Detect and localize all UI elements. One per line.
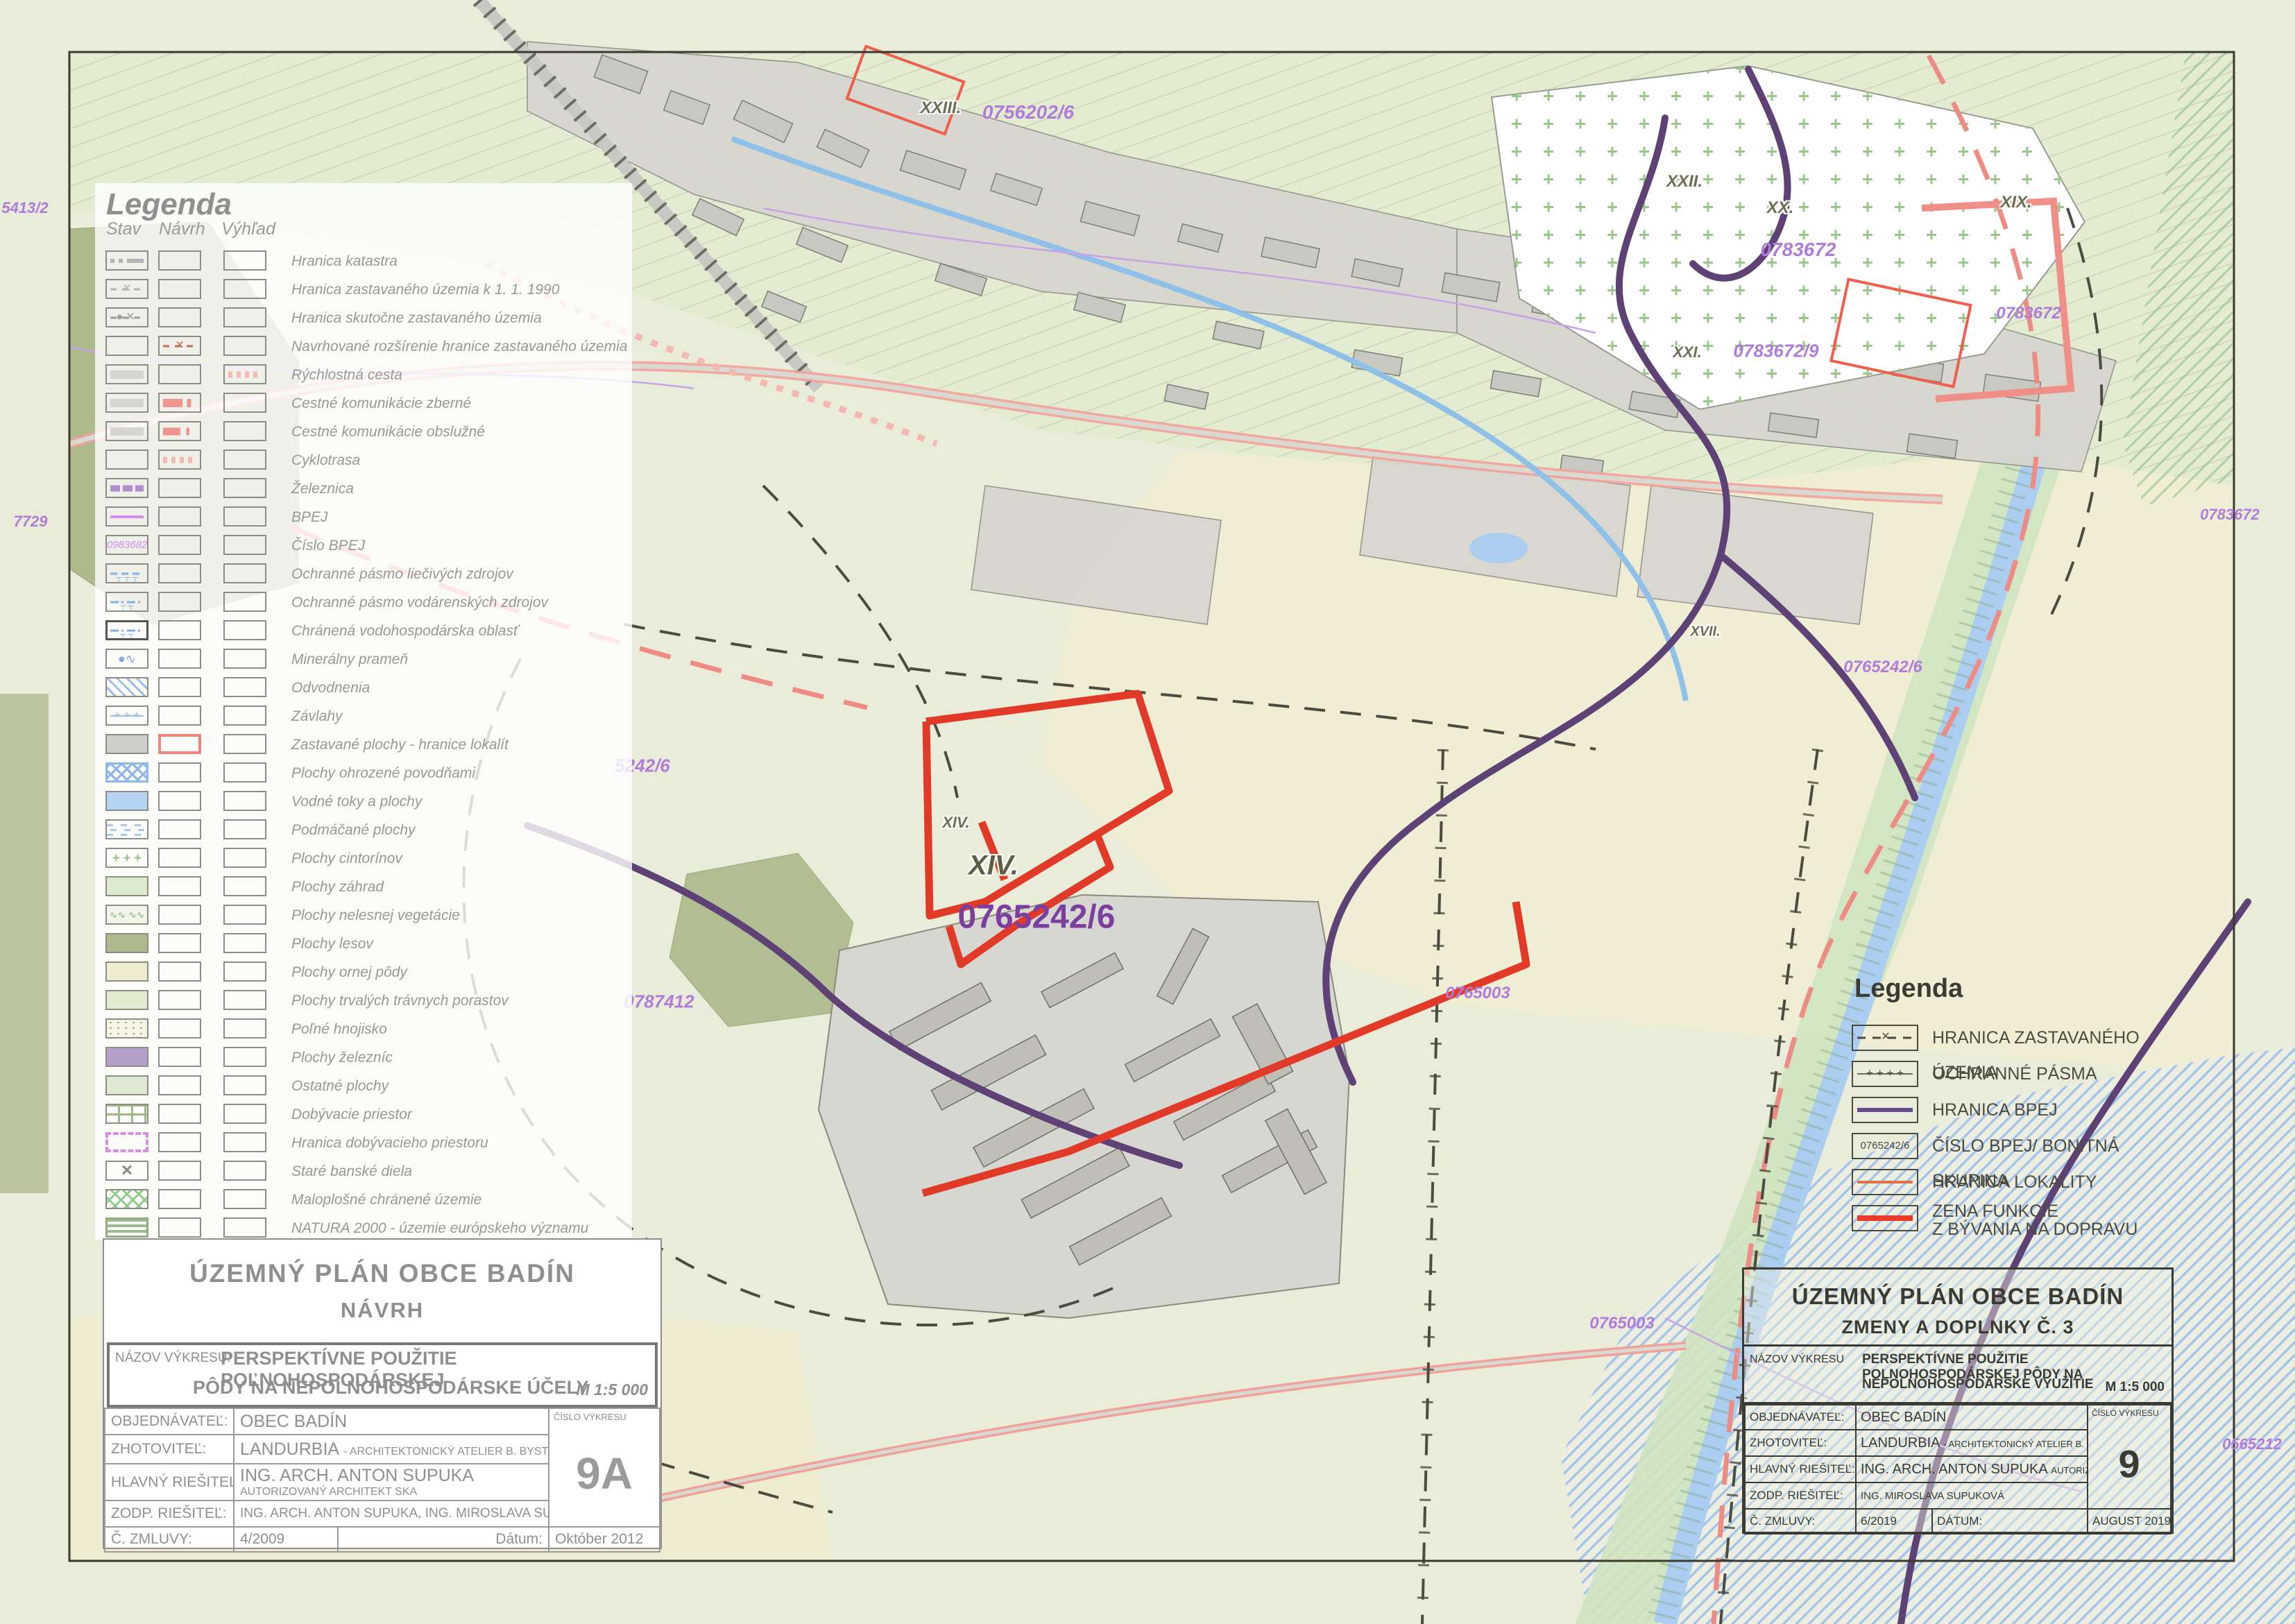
legend-swatch-c1 [105,677,148,697]
legend-swatch-c1 [105,933,148,953]
legend-right-item: ZENA FUNKCIE Z BÝVANIA NA DOPRAVU [1852,1201,2199,1237]
value-hlavny-riesitel: ING. ARCH. ANTON SUPUKA AUTORIZOVANÝ ARC… [234,1464,549,1501]
empty-swatch-icon [160,1048,200,1066]
legend-swatch-c3 [223,762,266,783]
blue-dashes-swatch-icon [107,821,147,838]
legend-row: Závlahy [95,702,632,730]
legend-row: Hranica skutočne zastavaného územia [95,304,632,332]
map-label: 0565212 [2222,1435,2282,1453]
legend-swatch-c1 [105,592,148,612]
legend-row: BPEJ [95,503,632,531]
legend-swatch-c3 [223,791,266,811]
legend-row-label: Plochy ohrozené povodňami [291,759,475,787]
legend-row: Hranica zastavaného územia k 1. 1. 1990 [95,275,632,304]
legend-swatch-c3 [223,563,266,583]
legend-row-label: Plochy železníc [291,1043,393,1072]
blue-ticks-swatch-icon [107,565,147,582]
legend-col-stav: Stav [106,219,141,239]
map-label: XIV. [942,814,970,832]
olive-speckle-swatch-icon [107,1020,147,1037]
legend-row-label: Ochranné pásmo liečivých zdrojov [291,560,513,588]
map-label: 0756202/6 [982,101,1074,123]
legend-swatch-c1 [105,393,148,413]
legend-row: 0983682/9Číslo BPEJ [95,531,632,560]
legend-swatch-c3 [223,279,266,299]
legend-swatch-c1 [105,336,148,356]
legend-row: Cestné komunikácie zberné [95,389,632,418]
legend-swatch-c1 [105,649,148,669]
empty-swatch-icon [107,337,147,354]
legend-row: Poľné hnojisko [95,1015,632,1043]
value-zodp-riesitel: ING. ARCH. ANTON SUPUKA, ING. MIROSLAVA … [234,1501,549,1527]
empty-swatch-icon [225,1162,265,1179]
titleblock-right-title: ÚZEMNÝ PLÁN OBCE BADÍN [1744,1283,2172,1310]
legend-swatch-c3 [223,250,266,271]
legend-right-item: HRANICA BPEJ [1852,1093,2199,1129]
legend-right-swatch [1852,1169,1918,1195]
olive-fill-swatch-icon [107,934,147,952]
map-label: XXII. [1666,172,1703,191]
legend-swatch-c1 [105,706,148,726]
label-hlavny-riesitel-r: HLAVNÝ RIEŠITEĽ: [1745,1456,1856,1482]
titleblock-right: ÚZEMNÝ PLÁN OBCE BADÍN ZMENY A DOPLNKY Č… [1742,1267,2174,1534]
legend-swatch-c1: 0983682/9 [105,535,148,555]
empty-swatch-icon [160,764,200,781]
legend-left-title: Legenda [106,187,232,222]
legend-row-label: Podmáčané plochy [291,816,416,844]
legend-swatch-c1 [105,905,148,925]
label-zmluva: Č. ZMLUVY: [105,1527,234,1552]
legend-swatch-c1 [105,1161,148,1181]
legend-swatch-c3 [223,393,266,413]
legend-row: Navrhované rozšírenie hranice zastavanéh… [95,332,632,361]
empty-swatch-icon [160,1077,200,1094]
legend-swatch-c3 [223,848,266,868]
legend-row-label: Vodné toky a plochy [291,787,422,816]
empty-swatch-icon [160,1162,200,1179]
map-label: XXIII. [921,99,962,118]
label-objednavatel-r: OBJEDNÁVATEĽ: [1745,1405,1856,1430]
legend-row: Staré banské diela [95,1157,632,1186]
legend-row-label: Železnica [291,475,354,503]
legend-row: Plochy záhrad [95,873,632,901]
drawing-name-line2: PÔDY NA NEPOĽNOHOSPODÁRSKE ÚČELY [193,1377,589,1399]
legend-row-label: Dobývacie priestor [291,1100,412,1129]
empty-swatch-icon [160,1219,200,1236]
empty-swatch-icon [225,280,265,298]
legend-row-label: Ochranné pásmo vodárenských zdrojov [291,588,548,617]
legend-swatch-c3 [223,677,266,697]
legend-swatch-c2 [158,961,201,982]
legend-swatch-c3 [223,535,266,555]
legend-row: Plochy lesov [95,930,632,958]
blue-spring-swatch-icon [107,650,147,667]
legend-swatch-c3 [223,819,266,839]
empty-swatch-icon [160,280,200,298]
legend-row-label: Číslo BPEJ [291,531,365,560]
empty-swatch-icon [225,622,265,639]
legend-swatch-c2 [158,535,201,555]
map-label: 5413/2 [1,199,48,217]
empty-swatch-icon [225,394,265,411]
legend-swatch-c2 [158,563,201,583]
legend-swatch-c3 [223,706,266,726]
legend-swatch-c2 [158,592,201,612]
empty-swatch-icon [225,508,265,525]
empty-swatch-icon [225,991,265,1009]
empty-swatch-icon [160,1190,200,1208]
legend-swatch-c1 [105,1104,148,1124]
drawing-name-box-right: NÁZOV VÝKRESU PERSPEKTÍVNE POUŽITIE POLN… [1744,1344,2172,1404]
gray-dot-x-swatch-icon [107,309,147,326]
legend-swatch-c1 [105,734,148,754]
legend-swatch-c2 [158,620,201,640]
map-label: 0783672 [1760,239,1836,261]
legend-right-title: Legenda [1854,974,2199,1004]
legend-swatch-c1 [105,961,148,982]
empty-swatch-icon [160,792,200,810]
empty-swatch-icon [225,1048,265,1066]
legend-swatch-c3 [223,1132,266,1152]
plan-sheet: 5413/27729XXIII.0756202/6XXII.XX.XIX.078… [0,0,2295,1624]
green-plus-swatch-icon [107,849,147,866]
legend-right-swatch [1852,1097,1918,1123]
legend-row-label: Cestné komunikácie obslužné [291,418,485,446]
legend-swatch-c3 [223,1018,266,1038]
empty-swatch-icon [225,678,265,696]
value-zmluva: 4/2009 [234,1527,338,1552]
empty-swatch-icon [160,622,200,639]
label-zhotovitel: ZHOTOVITEĽ: [105,1435,234,1464]
legend-swatch-c3 [223,1047,266,1067]
sheet-number-cell-r: ČÍSLO VÝKRESU 9 [2088,1405,2171,1509]
green-scribble-swatch-icon [107,906,147,923]
value-zhotovitel-r: LANDURBIA - ARCHITEKTONICKÝ ATELIER B. B… [1856,1430,2088,1456]
empty-swatch-icon [225,1077,265,1094]
legend-swatch-c3 [223,450,266,470]
value-hlavny-riesitel-r: ING. ARCH. ANTON SUPUKA AUTORIZOVANÝ ARC… [1856,1456,2088,1482]
legend-swatch-c1 [105,620,148,640]
blue-plusgrid-swatch-icon [107,707,147,724]
label-hlavny-riesitel: HLAVNÝ RIEŠITEĽ: [105,1464,234,1501]
empty-swatch-icon [225,735,265,753]
legend-swatch-c3 [223,421,266,441]
blue-hatch-swatch-icon [107,678,147,696]
gray-band-swatch-icon [107,422,147,440]
legend-row: Cyklotrasa [95,446,632,475]
legend-row: Vodné toky a plochy [95,787,632,816]
legend-swatch-c1 [105,563,148,583]
purple-rail-swatch-icon [107,479,147,497]
legend-row: Chránená vodohospodárska oblasť [95,617,632,645]
sheet-number-cell: ČÍSLO VÝKRESU 9A [549,1408,660,1527]
legend-row-label: Plochy cintorínov [291,844,402,873]
legend-swatch-c1 [105,990,148,1010]
sheet-number: 9A [549,1448,659,1499]
legend-swatch-c2 [158,279,201,299]
legend-swatch-c2 [158,848,201,868]
label-datum-r: DÁTUM: [1932,1509,2088,1534]
legend-swatch-c1 [105,506,148,527]
empty-swatch-icon [225,764,265,781]
drawing-name-line2-right: NEPOLNOHOSPODÁRSKE VYUŽITIE [1862,1377,2094,1392]
empty-swatch-icon [160,479,200,497]
value-datum-r: AUGUST 2019 [2088,1509,2171,1534]
legend-row-label: Plochy trvalých trávnych porastov [291,986,509,1015]
empty-swatch-icon [160,650,200,667]
drawing-name-label-right: NÁZOV VÝKRESU [1750,1353,1844,1366]
legend-row: Ochranné pásmo vodárenských zdrojov [95,588,632,617]
legend-swatch-c2 [158,791,201,811]
legend-right-item-label: ZENA FUNKCIE Z BÝVANIA NA DOPRAVU [1932,1201,2138,1238]
label-datum: Dátum: [338,1527,549,1552]
legend-row: Dobývacie priestor [95,1100,632,1129]
legend-swatch-c2 [158,1018,201,1038]
empty-swatch-icon [225,1190,265,1208]
legend-row: Plochy cintorínov [95,844,632,873]
label-zmluva-r: Č. ZMLUVY: [1745,1509,1856,1534]
legend-swatch-c3 [223,1217,266,1238]
green-bars-swatch-icon [108,1220,146,1236]
r-num-icon: 0765242/6 [1853,1134,1917,1158]
blue-fill-swatch-icon [107,792,147,810]
empty-swatch-icon [108,1135,146,1149]
empty-swatch-icon [225,479,265,497]
empty-swatch-icon [225,252,265,269]
sheet-number-r: 9 [2088,1441,2170,1486]
cream-fill-swatch-icon [107,963,147,980]
legend-swatch-c2 [158,1104,201,1124]
label-zhotovitel-r: ZHOTOVITEĽ: [1745,1430,1856,1456]
sheet-number-label: ČÍSLO VÝKRESU [554,1412,626,1422]
legend-row-label: Maloplošné chránené územie [291,1186,481,1214]
legend-swatch-c1 [105,1189,148,1209]
legend-row-label: Hranica zastavaného územia k 1. 1. 1990 [291,275,559,304]
map-label: XVII. [1690,624,1720,640]
legend-swatch-c3 [223,620,266,640]
legend-swatch-c3 [223,876,266,896]
legend-swatch-c2 [158,393,201,413]
legend-row-label: Hranica dobývacieho priestoru [291,1129,488,1157]
empty-swatch-icon [160,707,200,724]
legend-right-item-label: HRANICA LOKALITY [1932,1165,2097,1199]
legend-row: Plochy nelesnej vegetácie [95,901,632,930]
legend-swatch-c2 [158,762,201,783]
map-label: 0765003 [1589,1314,1654,1333]
legend-right-item-label: OCHRANNÉ PÁSMA [1932,1057,2097,1091]
r-red-icon [1853,1206,1917,1230]
empty-swatch-icon [225,906,265,923]
green-crosshatch-swatch-icon [107,1190,147,1208]
map-label: 0783672/9 [1734,341,1819,362]
map-label: 0765003 [1445,984,1510,1003]
lightgreen-fill-swatch-icon [107,878,147,895]
empty-swatch-icon [161,737,198,751]
empty-swatch-icon [225,536,265,554]
legend-swatch-c3 [223,1189,266,1209]
legend-swatch-c3 [223,734,266,754]
map-label: 0765242/6 [1843,658,1922,677]
empty-swatch-icon [160,593,200,610]
value-objednavatel: OBEC BADÍN [234,1408,549,1435]
legend-right-swatch [1852,1205,1918,1231]
map-label: 0783672 [2200,506,2260,524]
legend-row-label: Plochy ornej pôdy [291,958,407,986]
legend-row-label: Poľné hnojisko [291,1015,387,1043]
legend-swatch-c2 [158,649,201,669]
empty-swatch-icon [160,678,200,696]
r-purple-icon [1853,1098,1917,1122]
legend-swatch-c2 [158,905,201,925]
drawing-scale: M 1:5 000 [576,1381,648,1399]
legend-swatch-c2 [158,734,201,754]
legend-row: Zastavané plochy - hranice lokalít [95,730,632,759]
legend-swatch-c2 [158,1047,201,1067]
legend-swatch-c3 [223,336,266,356]
legend-row: Plochy trvalých trávnych porastov [95,986,632,1015]
salmon-blocks-swatch-icon [160,394,200,411]
legend-right-swatch: 0765242/6 [1852,1133,1918,1159]
empty-swatch-icon [160,963,200,980]
empty-swatch-icon [107,451,147,468]
legend-row-label: BPEJ [291,503,328,531]
r-plus-icon [1853,1062,1917,1086]
legend-swatch-c2 [158,1132,201,1152]
legend-row: Podmáčané plochy [95,816,632,844]
legend-swatch-c2 [158,478,201,498]
empty-swatch-icon [225,821,265,838]
legend-swatch-c3 [223,933,266,953]
legend-swatch-c2 [158,307,201,327]
empty-swatch-icon [160,821,200,838]
legend-row: Cestné komunikácie obslužné [95,418,632,446]
legend-row-label: Zastavané plochy - hranice lokalít [291,730,509,759]
legend-swatch-c1 [105,421,148,441]
legend-row-label: Chránená vodohospodárska oblasť [291,617,518,645]
empty-swatch-icon [160,508,200,525]
legend-swatch-c1 [105,1132,148,1152]
legend-swatch-c2 [158,1217,201,1238]
pink-dotted-swatch-icon [225,366,265,383]
legend-row: Maloplošné chránené územie [95,1186,632,1214]
legend-swatch-c1 [105,250,148,271]
legend-right-item: 0765242/6ČÍSLO BPEJ/ BONITNÁ SKUPINA [1852,1129,2199,1165]
legend-swatch-c1 [105,279,148,299]
legend-swatch-c3 [223,961,266,982]
legend-swatch-c1 [105,1018,148,1038]
map-label: 0787412 [624,991,694,1013]
legend-swatch-c3 [223,307,266,327]
legend-swatch-c2 [158,990,201,1010]
map-label: XIV. [969,851,1018,882]
gray-fill-swatch-icon [107,735,147,753]
gray-dotdash-swatch-icon [107,252,147,269]
legend-row-label: Hranica skutočne zastavaného územia [291,304,542,332]
legend-swatch-c3 [223,905,266,925]
empty-swatch-icon [225,1105,265,1122]
legend-row: Železnica [95,475,632,503]
empty-swatch-icon [225,849,265,866]
legend-swatch-c2 [158,876,201,896]
label-zodp-riesitel-r: ZODP. RIEŠITEĽ: [1745,1482,1856,1509]
bpej-text-swatch-icon: 0983682/9 [107,536,147,554]
legend-swatch-c2 [158,933,201,953]
legend-swatch-c2 [158,1075,201,1095]
legend-swatch-c2 [158,677,201,697]
legend-swatch-c1 [105,762,148,783]
gray-band-swatch-icon [107,366,147,383]
violet-line-swatch-icon [107,508,147,525]
label-zodp-riesitel: ZODP. RIEŠITEĽ: [105,1501,234,1527]
legend-row: Plochy ohrozené povodňami [95,759,632,787]
sheet-number-label-r: ČÍSLO VÝKRESU [2092,1408,2159,1418]
drawing-scale-right: M 1:5 000 [2105,1380,2165,1395]
palegreen-fill-swatch-icon [107,991,147,1009]
empty-swatch-icon [225,565,265,582]
legend-right-item-label: HRANICA BPEJ [1932,1093,2058,1127]
blue-dashdot-swatch-icon [107,593,147,610]
legend-row-label: Hranica katastra [291,247,398,275]
legend-swatch-c2 [158,421,201,441]
empty-swatch-icon [225,422,265,440]
empty-swatch-icon [160,536,200,554]
green-grid-swatch-icon [107,1105,147,1122]
titleblock-left-title: ÚZEMNÝ PLÁN OBCE BADÍN [104,1259,660,1288]
legend-swatch-c1 [105,1217,148,1238]
salmon-blocks-sm-swatch-icon [160,422,200,440]
legend-row: Ostatné plochy [95,1072,632,1100]
empty-swatch-icon [160,878,200,895]
legend-swatch-c3 [223,649,266,669]
r-dashx-icon [1853,1026,1917,1050]
empty-swatch-icon [160,366,200,383]
empty-swatch-icon [225,650,265,667]
paler-fill-swatch-icon [107,1077,147,1094]
legend-swatch-c1 [105,364,148,384]
empty-swatch-icon [160,1020,200,1037]
empty-swatch-icon [160,309,200,326]
legend-right-item: OCHRANNÉ PÁSMA [1852,1057,2199,1093]
legend-swatch-c1 [105,876,148,896]
empty-swatch-icon [160,565,200,582]
legend-swatch-c1 [105,1075,148,1095]
legend-col-navrh: Návrh [159,219,205,239]
empty-swatch-icon [225,878,265,895]
r-orange-icon [1853,1170,1917,1194]
legend-row: Rýchlostná cesta [95,361,632,389]
legend-swatch-c3 [223,990,266,1010]
legend-row-label: Navrhované rozšírenie hranice zastavanéh… [291,332,627,361]
legend-swatch-c3 [223,506,266,527]
legend-right-item: HRANICA LOKALITY [1852,1165,2199,1201]
legend-row-label: Závlahy [291,702,343,730]
empty-swatch-icon [225,451,265,468]
map-label: 0765242/6 [958,898,1116,937]
legend-row-label: Plochy záhrad [291,873,384,901]
legend-row: Plochy železníc [95,1043,632,1072]
empty-swatch-icon [160,1134,200,1151]
empty-swatch-icon [160,934,200,952]
value-objednavatel-r: OBEC BADÍN [1856,1405,2088,1430]
value-zodp-riesitel-r: ING. MIROSLAVA SUPUKOVÁ [1856,1482,2088,1509]
titleblock-left-subtitle: NÁVRH [104,1298,660,1323]
legend-row-label: Staré banské diela [291,1157,412,1186]
legend-swatch-c3 [223,364,266,384]
legend-swatch-c1 [105,819,148,839]
map-label: XX. [1767,198,1794,218]
titleblock-right-subtitle: ZMENY A DOPLNKY Č. 3 [1744,1317,2172,1338]
legend-swatch-c3 [223,1075,266,1095]
